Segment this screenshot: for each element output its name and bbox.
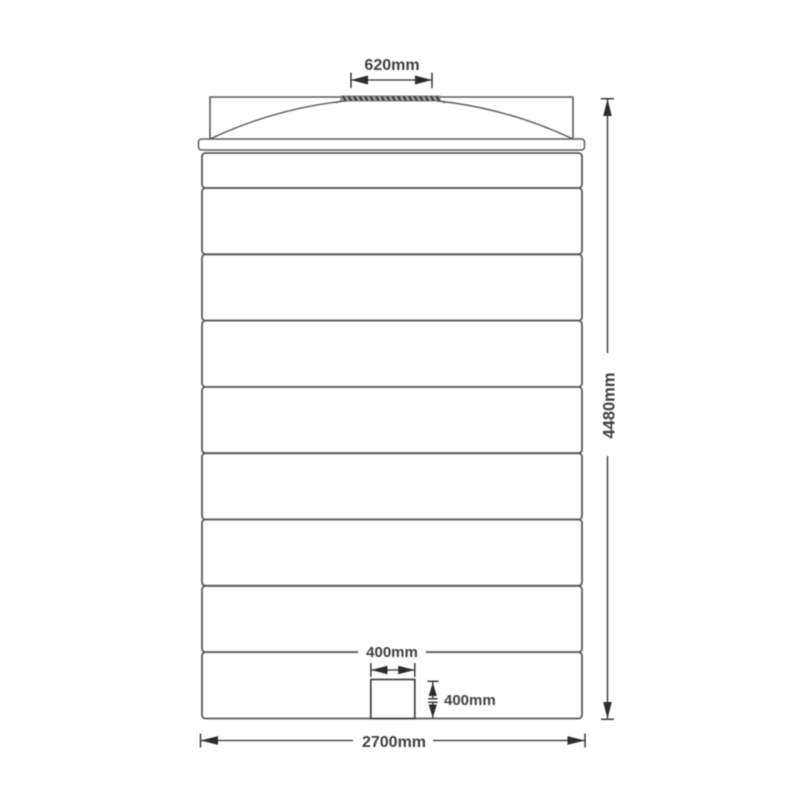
svg-text:400mm: 400mm (444, 692, 496, 709)
svg-text:400mm: 400mm (366, 644, 418, 661)
svg-text:4480mm: 4480mm (601, 372, 619, 438)
svg-text:2700mm: 2700mm (362, 734, 426, 751)
svg-text:620mm: 620mm (364, 57, 419, 74)
